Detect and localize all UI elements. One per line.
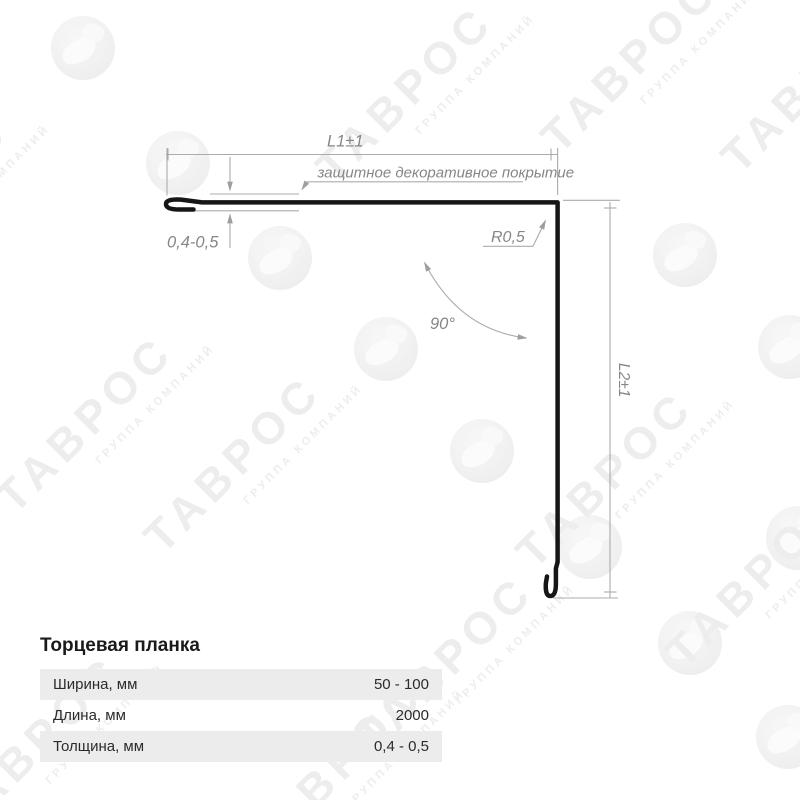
spec-label: Толщина, мм xyxy=(53,738,144,755)
dimension-lines xyxy=(166,148,620,598)
angle-label: 90° xyxy=(430,315,455,333)
table-row: Длина, мм 2000 xyxy=(40,700,442,731)
profile-outline xyxy=(166,199,558,596)
spec-label: Ширина, мм xyxy=(53,676,137,693)
specs-table: Ширина, мм 50 - 100 Длина, мм 2000 Толщи… xyxy=(40,669,442,762)
coating-label: защитное декоративное покрытие xyxy=(317,165,575,182)
thickness-dimension-label: 0,4-0,5 xyxy=(167,234,219,252)
radius-label: R0,5 xyxy=(491,229,525,246)
coating-leader-arrow xyxy=(302,182,307,190)
table-row: Толщина, мм 0,4 - 0,5 xyxy=(40,731,442,762)
spec-label: Длина, мм xyxy=(53,707,126,724)
spec-value: 50 - 100 xyxy=(374,676,429,693)
spec-value: 0,4 - 0,5 xyxy=(374,738,429,755)
radius-leader-arrow xyxy=(533,221,546,247)
table-row: Ширина, мм 50 - 100 xyxy=(40,669,442,700)
l1-dimension-label: L1±1 xyxy=(327,133,364,151)
page: ТАВРОСГРУППА КОМПАНИЙТАВРОСГРУППА КОМПАН… xyxy=(0,0,800,800)
spec-value: 2000 xyxy=(396,707,429,724)
product-title: Торцевая планка xyxy=(40,635,200,657)
l2-dimension-label: L2±1 xyxy=(615,363,632,397)
